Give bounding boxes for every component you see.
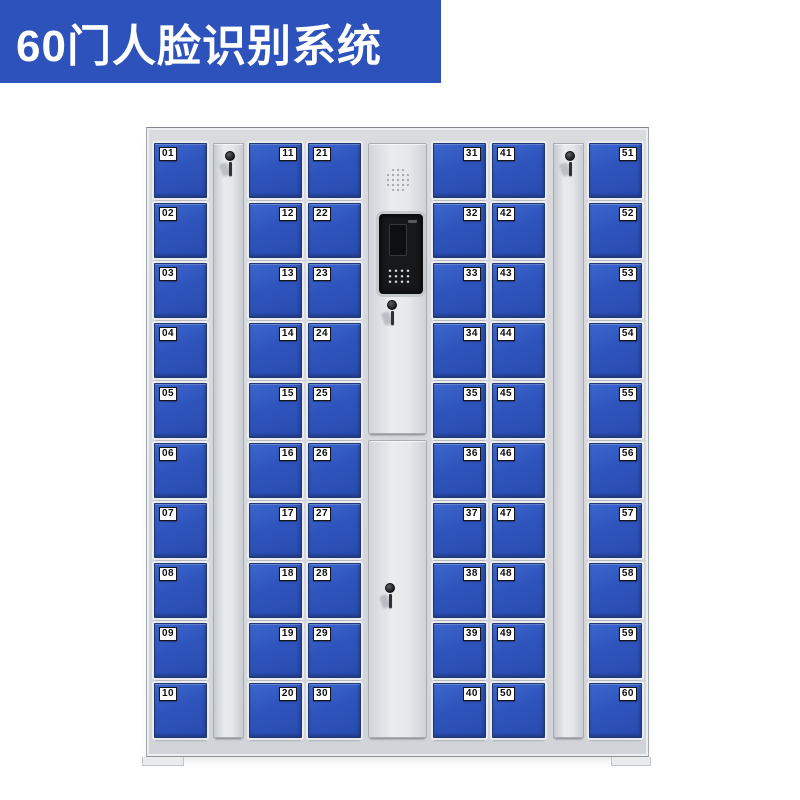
control-panel-upper-door[interactable] — [368, 143, 427, 434]
lock-cylinder-icon — [385, 583, 395, 593]
lock-cylinder-icon — [225, 151, 235, 161]
locker-door-28[interactable]: 28 — [308, 563, 361, 618]
locker-door-49[interactable]: 49 — [492, 623, 545, 678]
key-icon — [229, 162, 232, 176]
door-number-label: 21 — [313, 147, 331, 161]
locker-door-21[interactable]: 21 — [308, 143, 361, 198]
door-number-label: 41 — [497, 147, 515, 161]
door-number-label: 11 — [279, 147, 297, 161]
door-column-01-10: 01020304050607080910 — [154, 143, 207, 738]
banner-title: 60门人脸识别系统 — [0, 10, 382, 74]
locker-door-55[interactable]: 55 — [589, 383, 642, 438]
door-number-label: 22 — [313, 207, 331, 221]
locker-door-02[interactable]: 02 — [154, 203, 207, 258]
door-number-label: 03 — [159, 267, 177, 281]
locker-door-32[interactable]: 32 — [433, 203, 486, 258]
banner: 60门人脸识别系统 — [0, 0, 441, 83]
locker-door-04[interactable]: 04 — [154, 323, 207, 378]
locker-door-19[interactable]: 19 — [249, 623, 302, 678]
key-icon — [391, 311, 394, 325]
door-number-label: 07 — [159, 507, 177, 521]
door-number-label: 10 — [159, 687, 177, 701]
door-number-label: 45 — [497, 387, 515, 401]
door-number-label: 37 — [463, 507, 481, 521]
locker-door-45[interactable]: 45 — [492, 383, 545, 438]
locker-door-39[interactable]: 39 — [433, 623, 486, 678]
door-number-label: 50 — [497, 687, 515, 701]
door-number-label: 31 — [463, 147, 481, 161]
door-number-label: 38 — [463, 567, 481, 581]
locker-door-09[interactable]: 09 — [154, 623, 207, 678]
locker-door-03[interactable]: 03 — [154, 263, 207, 318]
locker-door-59[interactable]: 59 — [589, 623, 642, 678]
door-number-label: 01 — [159, 147, 177, 161]
locker-door-47[interactable]: 47 — [492, 503, 545, 558]
door-number-label: 17 — [279, 507, 297, 521]
cabinet-foot-left — [142, 757, 184, 766]
door-number-label: 40 — [463, 687, 481, 701]
door-number-label: 59 — [619, 627, 637, 641]
locker-door-01[interactable]: 01 — [154, 143, 207, 198]
speaker-grille-icon — [386, 168, 410, 192]
door-number-label: 12 — [279, 207, 297, 221]
door-number-label: 44 — [497, 327, 515, 341]
door-number-label: 35 — [463, 387, 481, 401]
locker-door-30[interactable]: 30 — [308, 683, 361, 738]
door-number-label: 27 — [313, 507, 331, 521]
door-number-label: 51 — [619, 147, 637, 161]
locker-door-56[interactable]: 56 — [589, 443, 642, 498]
locker-door-51[interactable]: 51 — [589, 143, 642, 198]
locker-door-11[interactable]: 11 — [249, 143, 302, 198]
door-number-label: 29 — [313, 627, 331, 641]
locker-door-34[interactable]: 34 — [433, 323, 486, 378]
door-number-label: 14 — [279, 327, 297, 341]
door-column-11-20: 11121314151617181920 — [249, 143, 302, 738]
side-lock-column-1[interactable] — [213, 143, 244, 738]
locker-door-40[interactable]: 40 — [433, 683, 486, 738]
door-number-label: 36 — [463, 447, 481, 461]
key-lock-upper[interactable] — [382, 300, 402, 336]
door-column-51-60: 51525354555657585960 — [589, 143, 642, 738]
door-number-label: 18 — [279, 567, 297, 581]
locker-door-58[interactable]: 58 — [589, 563, 642, 618]
door-number-label: 20 — [279, 687, 297, 701]
door-number-label: 56 — [619, 447, 637, 461]
locker-door-43[interactable]: 43 — [492, 263, 545, 318]
locker-door-23[interactable]: 23 — [308, 263, 361, 318]
door-number-label: 46 — [497, 447, 515, 461]
locker-door-35[interactable]: 35 — [433, 383, 486, 438]
locker-door-14[interactable]: 14 — [249, 323, 302, 378]
door-number-label: 60 — [619, 687, 637, 701]
product-image-page: 60门人脸识别系统 010203040506070809101112131415… — [0, 0, 800, 800]
keypad[interactable] — [386, 267, 410, 286]
face-recognition-screen[interactable] — [379, 214, 423, 294]
locker-door-20[interactable]: 20 — [249, 683, 302, 738]
cabinet-foot-right — [611, 757, 651, 766]
key-icon — [389, 594, 392, 608]
key-lock-icon[interactable] — [560, 151, 580, 187]
door-column-41-50: 41424344454647484950 — [492, 143, 545, 738]
locker-door-60[interactable]: 60 — [589, 683, 642, 738]
locker-door-22[interactable]: 22 — [308, 203, 361, 258]
door-number-label: 55 — [619, 387, 637, 401]
door-number-label: 53 — [619, 267, 637, 281]
locker-door-36[interactable]: 36 — [433, 443, 486, 498]
door-number-label: 08 — [159, 567, 177, 581]
door-number-label: 06 — [159, 447, 177, 461]
locker-door-24[interactable]: 24 — [308, 323, 361, 378]
cabinet-columns: 0102030405060708091011121314151617181920… — [147, 143, 648, 738]
door-column-31-40: 31323334353637383940 — [433, 143, 486, 738]
locker-door-33[interactable]: 33 — [433, 263, 486, 318]
locker-door-52[interactable]: 52 — [589, 203, 642, 258]
door-number-label: 52 — [619, 207, 637, 221]
locker-door-26[interactable]: 26 — [308, 443, 361, 498]
locker-door-07[interactable]: 07 — [154, 503, 207, 558]
locker-door-17[interactable]: 17 — [249, 503, 302, 558]
locker-door-10[interactable]: 10 — [154, 683, 207, 738]
control-panel-lower-door[interactable] — [368, 440, 427, 738]
door-number-label: 43 — [497, 267, 515, 281]
key-lock-icon[interactable] — [220, 151, 240, 187]
locker-cabinet: 0102030405060708091011121314151617181920… — [146, 127, 649, 757]
locker-door-42[interactable]: 42 — [492, 203, 545, 258]
locker-door-48[interactable]: 48 — [492, 563, 545, 618]
door-column-21-30: 21222324252627282930 — [308, 143, 361, 738]
locker-door-46[interactable]: 46 — [492, 443, 545, 498]
key-icon — [569, 162, 572, 176]
door-number-label: 28 — [313, 567, 331, 581]
locker-door-38[interactable]: 38 — [433, 563, 486, 618]
door-number-label: 04 — [159, 327, 177, 341]
door-number-label: 30 — [313, 687, 331, 701]
locker-door-53[interactable]: 53 — [589, 263, 642, 318]
locker-door-08[interactable]: 08 — [154, 563, 207, 618]
lock-cylinder-icon — [387, 300, 397, 310]
door-number-label: 15 — [279, 387, 297, 401]
locker-door-13[interactable]: 13 — [249, 263, 302, 318]
lock-cylinder-icon — [565, 151, 575, 161]
locker-door-06[interactable]: 06 — [154, 443, 207, 498]
door-number-label: 05 — [159, 387, 177, 401]
door-number-label: 57 — [619, 507, 637, 521]
camera-icon — [389, 224, 407, 256]
locker-door-25[interactable]: 25 — [308, 383, 361, 438]
locker-door-31[interactable]: 31 — [433, 143, 486, 198]
locker-door-54[interactable]: 54 — [589, 323, 642, 378]
control-panel-column — [368, 143, 427, 738]
speaker-slot-icon — [408, 220, 417, 223]
door-number-label: 16 — [279, 447, 297, 461]
locker-door-12[interactable]: 12 — [249, 203, 302, 258]
locker-door-15[interactable]: 15 — [249, 383, 302, 438]
door-number-label: 54 — [619, 327, 637, 341]
locker-door-37[interactable]: 37 — [433, 503, 486, 558]
door-number-label: 19 — [279, 627, 297, 641]
door-number-label: 09 — [159, 627, 177, 641]
locker-door-05[interactable]: 05 — [154, 383, 207, 438]
locker-door-44[interactable]: 44 — [492, 323, 545, 378]
door-number-label: 23 — [313, 267, 331, 281]
key-lock-lower[interactable] — [380, 583, 400, 619]
door-number-label: 24 — [313, 327, 331, 341]
door-number-label: 32 — [463, 207, 481, 221]
door-number-label: 47 — [497, 507, 515, 521]
door-number-label: 34 — [463, 327, 481, 341]
door-number-label: 58 — [619, 567, 637, 581]
door-number-label: 13 — [279, 267, 297, 281]
locker-door-27[interactable]: 27 — [308, 503, 361, 558]
locker-door-29[interactable]: 29 — [308, 623, 361, 678]
locker-door-16[interactable]: 16 — [249, 443, 302, 498]
door-number-label: 48 — [497, 567, 515, 581]
locker-door-41[interactable]: 41 — [492, 143, 545, 198]
locker-door-18[interactable]: 18 — [249, 563, 302, 618]
door-number-label: 49 — [497, 627, 515, 641]
locker-door-57[interactable]: 57 — [589, 503, 642, 558]
door-number-label: 26 — [313, 447, 331, 461]
door-number-label: 33 — [463, 267, 481, 281]
side-lock-column-2[interactable] — [553, 143, 584, 738]
door-number-label: 39 — [463, 627, 481, 641]
door-number-label: 25 — [313, 387, 331, 401]
locker-door-50[interactable]: 50 — [492, 683, 545, 738]
door-number-label: 42 — [497, 207, 515, 221]
door-number-label: 02 — [159, 207, 177, 221]
